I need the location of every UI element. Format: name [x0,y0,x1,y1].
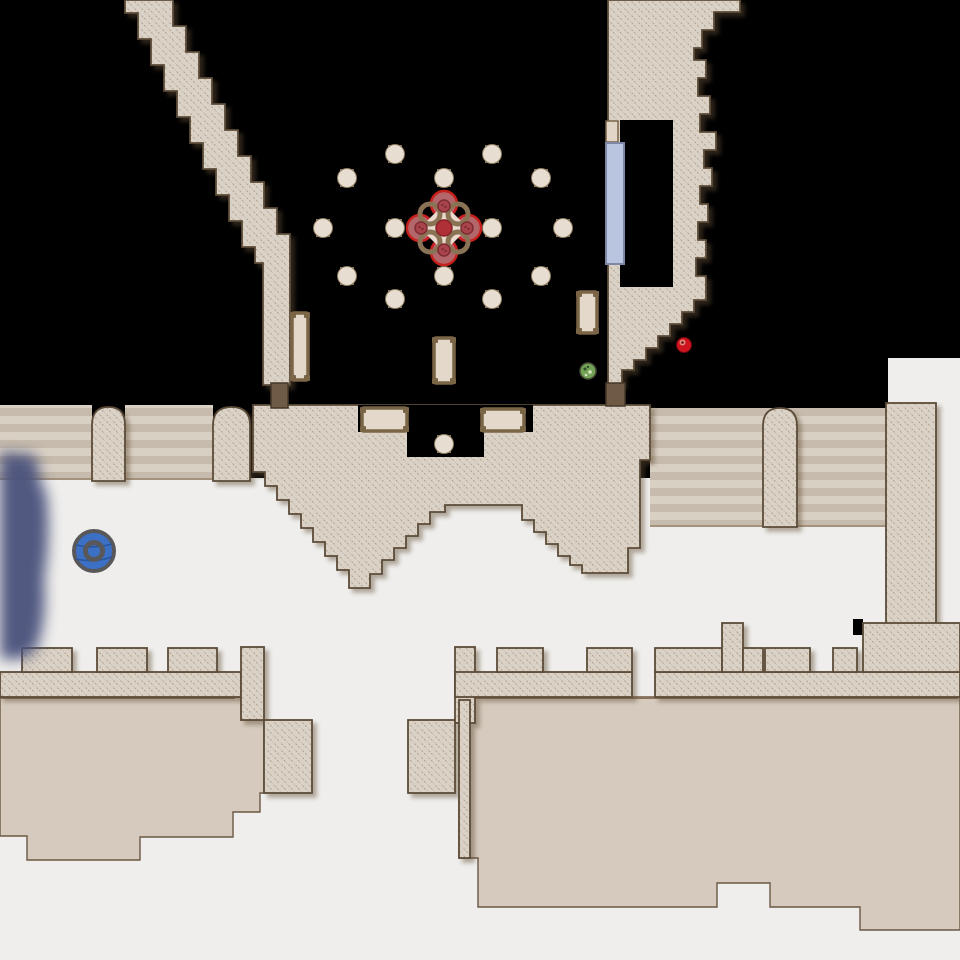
wall-br-tooth [833,648,857,672]
blue-portal-orb[interactable] [74,531,114,571]
dungeon-map-canvas[interactable] [0,0,960,960]
altar-table [432,337,456,384]
pillar-column [435,435,454,454]
pillar-column [338,169,357,188]
altar-table [480,408,526,432]
pillar-column [532,267,551,286]
pillar-column [483,219,502,238]
wall-br-tooth [765,648,810,672]
wall-br-band [455,672,632,697]
wall-arch-pillar [92,407,125,481]
altar-table [360,407,409,432]
unexplored-cutout [620,120,673,287]
wall-block [408,720,455,793]
pillar-column [483,145,502,164]
wall-right-column [886,403,936,645]
floor-room [0,697,264,860]
pillar-column [435,169,454,188]
wall-bl-tooth [97,648,147,672]
wall-bl-band [0,672,241,697]
floor-open [888,358,960,405]
pillar-column [483,290,502,309]
pillar-column [314,219,333,238]
pillar-column [386,145,405,164]
altar-table [576,291,599,334]
green-orb-item[interactable] [580,363,596,379]
wall-br-tooth [743,648,763,672]
wall-bl-column [241,647,264,720]
stairs-band [125,405,213,480]
pillar-column [386,290,405,309]
wall-br-tooth-tall [722,623,743,672]
wall-br-tooth [497,648,543,672]
pillar-column [532,169,551,188]
closed-door[interactable] [271,383,288,408]
wall-br-band [655,672,960,697]
floor-open [936,400,960,480]
glass-door[interactable] [606,143,624,264]
fog-cloud [0,452,48,659]
wall-bl-tooth [168,648,217,672]
closed-door[interactable] [606,383,625,406]
pillar-column [386,219,405,238]
wall-br-tooth [655,648,722,672]
altar-table [290,312,310,381]
wall-bl-column [264,720,312,793]
void-notch [853,619,863,635]
pillar-column [554,219,573,238]
floor-room [459,697,960,930]
pillar-column [338,267,357,286]
pillar-column [435,267,454,286]
wall-arch-pillar [763,408,797,527]
red-item-marker[interactable] [677,338,692,353]
alcove-recess [606,121,618,142]
wall-br-tooth [587,648,632,672]
game-map-viewport[interactable] [0,0,960,960]
wall-arch-pillar [213,407,250,481]
wall-br-right-block [863,623,960,672]
wall-room-inner-strip [459,700,470,858]
